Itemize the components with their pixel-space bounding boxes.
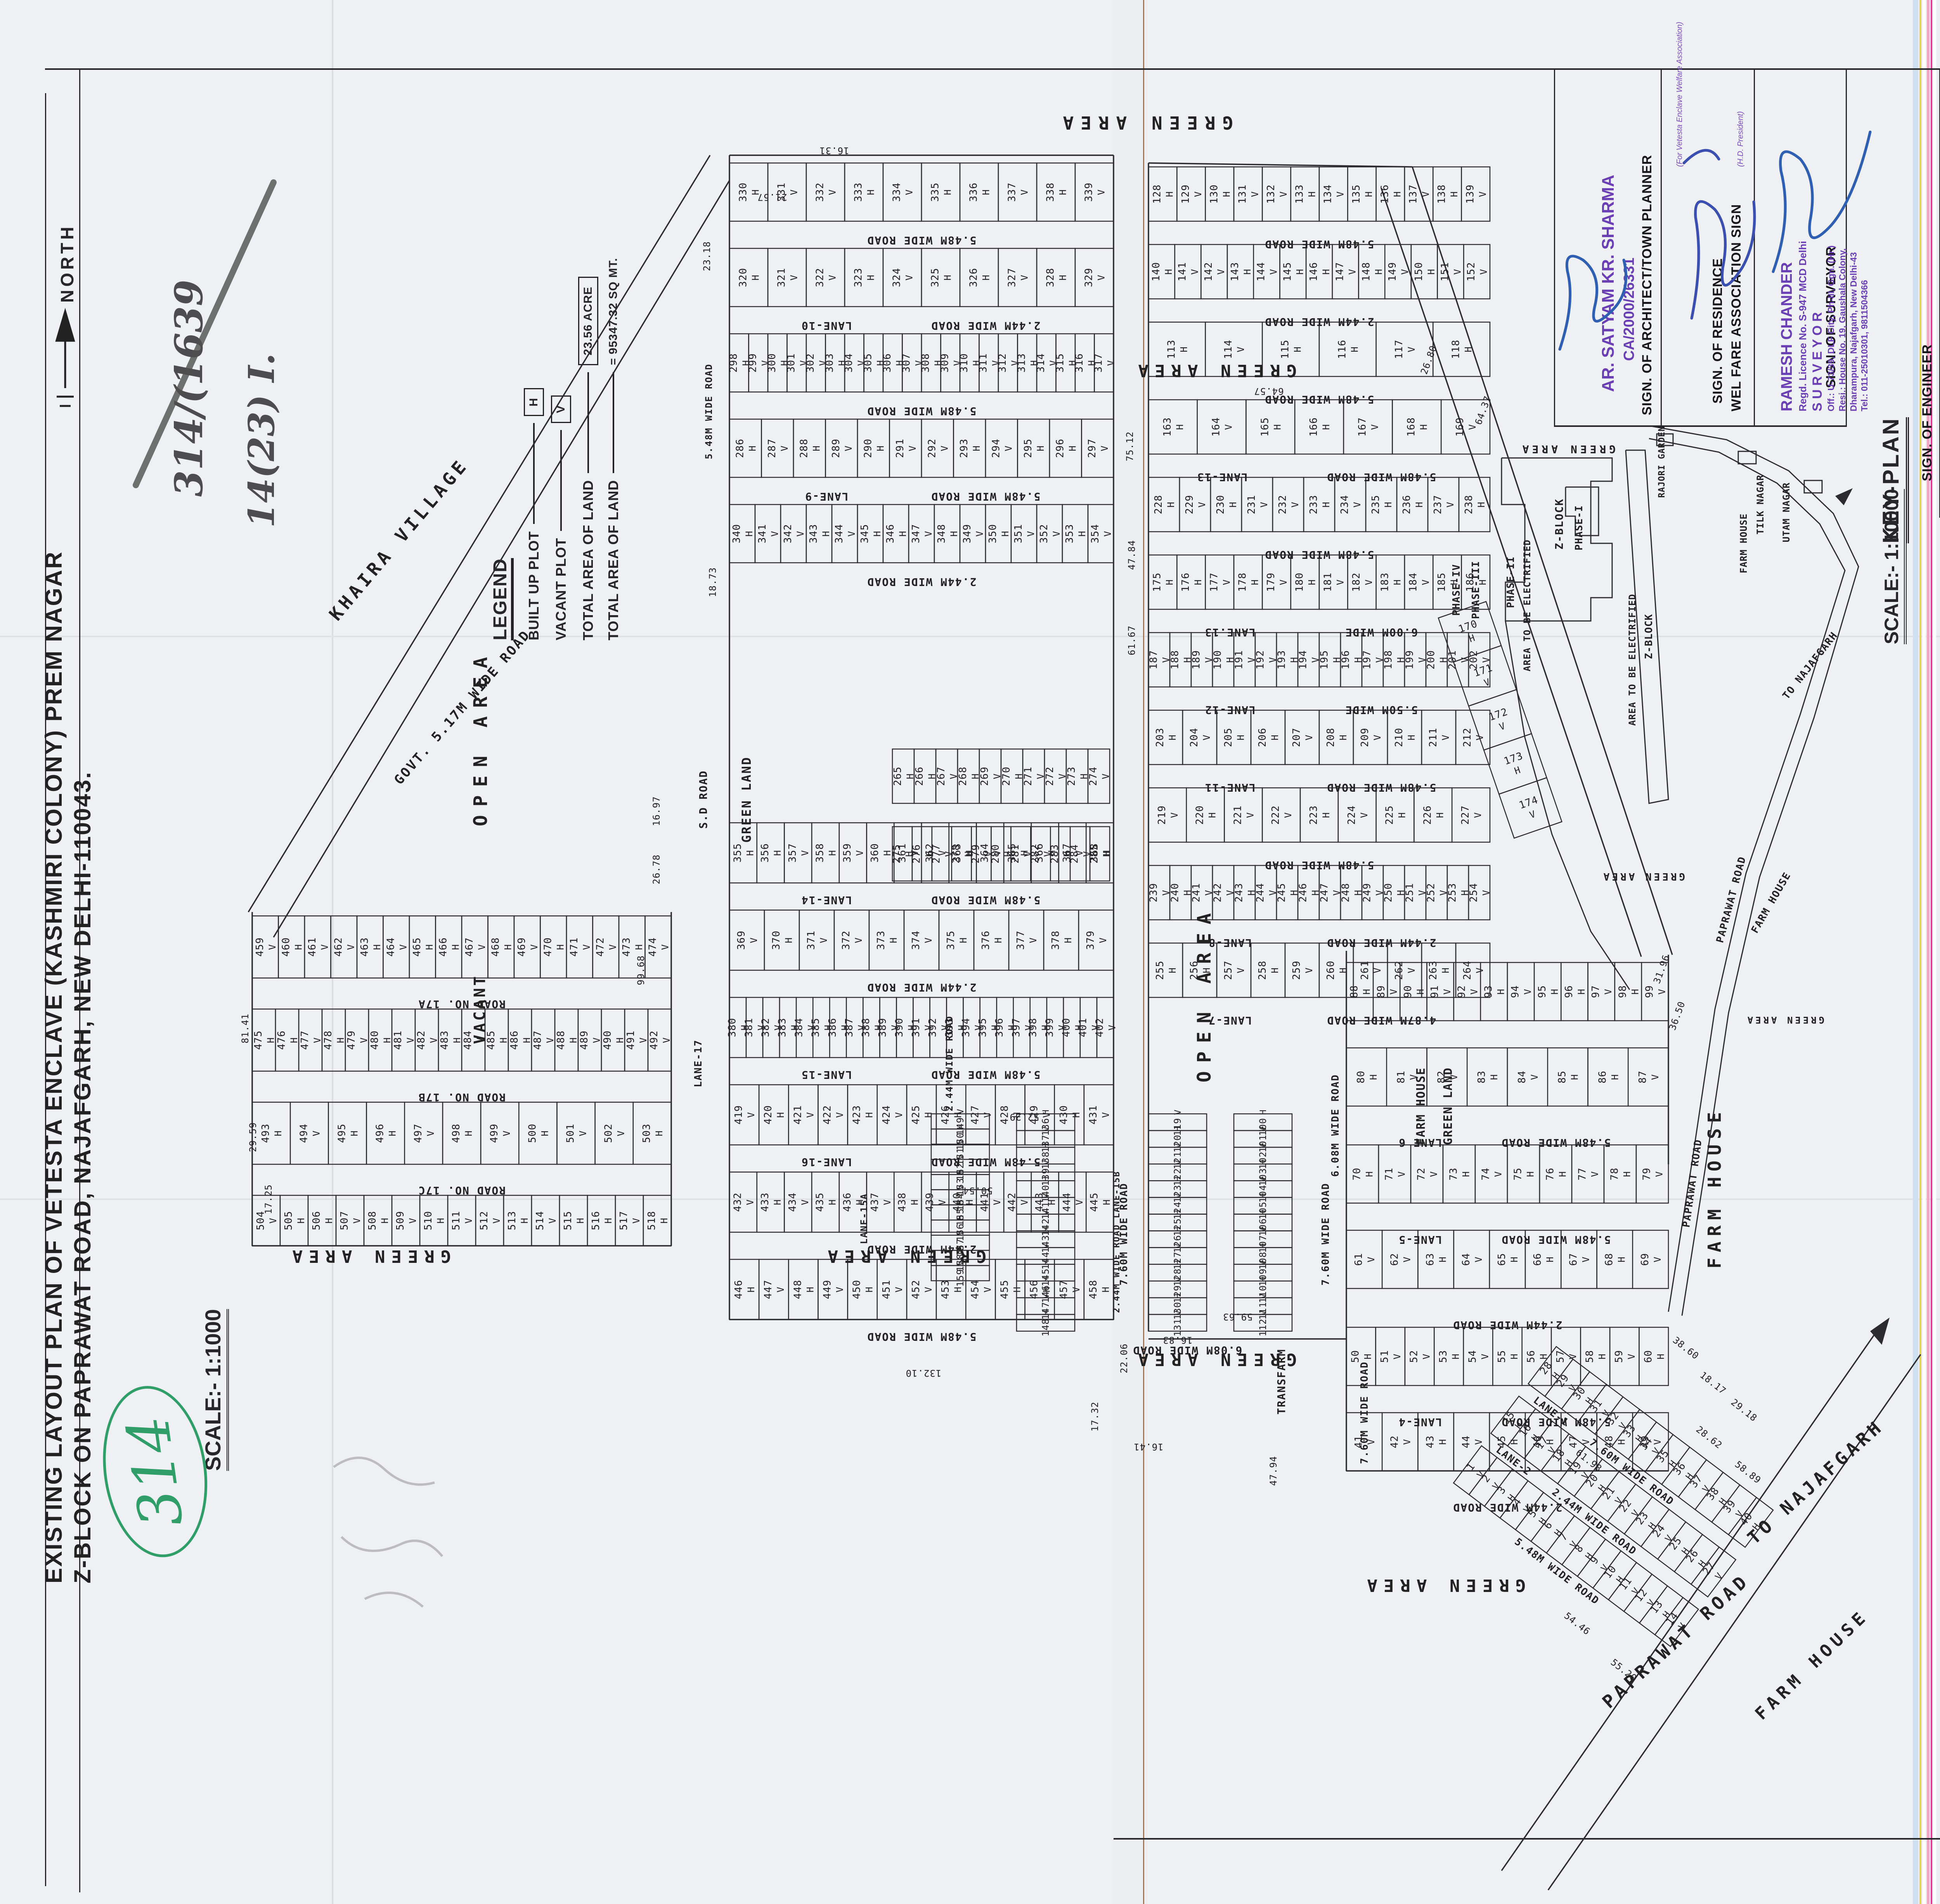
road-label: LANE-15 (801, 1068, 852, 1081)
plot-number: 338 (1045, 182, 1057, 202)
plot-flag: H (1207, 812, 1218, 818)
plot-number: 53 (1438, 1350, 1449, 1363)
plot-flag: V (1335, 191, 1346, 197)
plot-number: 169 (1454, 417, 1466, 437)
plot-number: 326 (968, 268, 980, 287)
plot-flag: V (835, 1287, 845, 1292)
plot-flag: V (1173, 1143, 1183, 1148)
plot-number: 343 (808, 524, 819, 543)
plot-number: 54 (1467, 1350, 1479, 1363)
plot-band: 504V505H506H507V508H509V510H511V512V513H… (252, 1195, 671, 1246)
plot-flag: H (1440, 967, 1451, 973)
plot-number: 502 (603, 1124, 615, 1143)
plot-number: 432 (732, 1193, 743, 1212)
plot-number: 468 (490, 937, 501, 957)
plot-number: 450 (851, 1280, 863, 1299)
plot-number: 92 (1456, 985, 1467, 998)
plot-number: 445 (1089, 1193, 1100, 1212)
plot-number: 179 (1265, 572, 1277, 592)
plot-number: 243 (1233, 883, 1245, 902)
plot-flag: V (1429, 1171, 1439, 1177)
plot-number: 487 (532, 1030, 544, 1050)
plot-number: 133 (1294, 184, 1305, 204)
plot-number: 317 (1093, 353, 1104, 373)
plot-flag: H (1259, 1109, 1268, 1115)
plot-number: 499 (488, 1124, 500, 1143)
plot-number: 296 (1054, 439, 1066, 458)
plot-flag: V (1190, 269, 1200, 274)
plot-number: 335 (930, 182, 941, 202)
plot-flag: H (335, 1037, 346, 1043)
plot-number: 94 (1510, 985, 1521, 998)
plot-number: 286 (734, 439, 746, 458)
plot-number: 321 (776, 268, 788, 287)
plot-number: 260 (1325, 961, 1337, 980)
plot-flag: V (1096, 189, 1107, 195)
plot-flag: H (502, 944, 513, 950)
plot-flag: V (956, 1108, 966, 1114)
plot-number: 285 (1089, 844, 1100, 864)
plot-number: 51 (1379, 1350, 1391, 1363)
plot-flag: V (956, 1230, 966, 1235)
plot-number: 236 (1401, 495, 1413, 514)
plot-number: 281 (1010, 844, 1021, 864)
area-label: FARM HOUSE (1704, 1107, 1725, 1269)
plot-number: 69 (1639, 1253, 1651, 1266)
plot-number: 424 (881, 1105, 892, 1125)
plot-flag: V (1003, 445, 1014, 451)
plot-flag: V (1370, 424, 1381, 430)
plot-number: 512 (478, 1211, 490, 1230)
road-label: LANE-14 (801, 894, 852, 907)
plot-flag: H (324, 1217, 334, 1223)
road-label: 6.00M WIDE (1345, 626, 1418, 639)
plot-number: 118 (1450, 340, 1462, 359)
keyplan-label: AREA TO BE ELECTRIFIED (1522, 539, 1533, 671)
plot-number: 466 (437, 937, 449, 957)
plot-flag: V (1406, 967, 1417, 973)
dimension-label: 26.80 (1419, 344, 1439, 376)
plot-flag: V (843, 445, 854, 451)
plot-number: 252 (1426, 883, 1437, 902)
plot-number: 67 (1568, 1253, 1579, 1266)
plot-number: 52 (1408, 1350, 1420, 1363)
plot-flag: H (1349, 346, 1360, 352)
plot-flag: V (1366, 1256, 1377, 1262)
dimension-label: 16.31 (819, 145, 849, 156)
plot-number: 347 (910, 524, 922, 543)
plot-number: 332 (814, 182, 826, 202)
plot-flag: V (631, 1217, 642, 1223)
plot-number: 43 (1425, 1435, 1436, 1448)
dimension-label: 26.78 (651, 854, 662, 884)
area-label: PAPRAWAT ROAD (1598, 1569, 1753, 1712)
area-label: VACANT (471, 974, 489, 1044)
plot-number: 272 (1044, 766, 1056, 786)
plot-flag: H (1259, 1160, 1268, 1165)
plot-number: 287 (766, 439, 778, 458)
plot-number: 64 (1460, 1253, 1472, 1266)
plot-number: 220 (1194, 805, 1206, 825)
plot-number: 378 (1050, 931, 1062, 950)
plot-flag: H (1306, 579, 1317, 585)
plot-flag: V (359, 1037, 369, 1043)
plot-number: 136 (1379, 184, 1391, 204)
plot-number: 351 (1013, 524, 1024, 543)
keyplan-landmark-box (1804, 480, 1822, 493)
plot-band: 163H164V165H166H167V168H169V (1148, 400, 1490, 454)
scanned-layout-plan-sheet: EXISTING LAYOUT PLAN OF VETESTA ENCLAVE … (0, 0, 1940, 1904)
plot-flag: V (581, 944, 592, 950)
plot-number: 472 (594, 937, 606, 957)
keyplan-label: TILK NAGAR (1755, 475, 1766, 535)
road-label: 2.44M WIDE ROAD (944, 1016, 955, 1112)
dimension-label: 75.12 (1124, 431, 1135, 461)
plot-flag: V (501, 1130, 512, 1136)
plot-flag: H (1163, 269, 1174, 274)
plot-flag: V (846, 531, 857, 536)
plot-flag: V (616, 1130, 627, 1136)
plot-flag: V (1028, 937, 1039, 943)
plot-number: 93 (1483, 985, 1494, 998)
plot-flag: V (1650, 1074, 1661, 1080)
road-label: 5.48M WIDE ROAD (1264, 548, 1374, 561)
plot-band: 493H494V495H496H497V498H499V500H501V502V… (252, 1102, 671, 1164)
plot-number: 399 (1044, 1018, 1055, 1037)
plot-number: 454 (969, 1280, 981, 1299)
plot-number: 370 (771, 931, 782, 950)
dimension-label: 81.41 (240, 1013, 251, 1043)
plot-number: 77 (1577, 1167, 1588, 1180)
plot-flag: V (607, 944, 618, 950)
area-label: GREEN AREA (1056, 112, 1233, 133)
road-label: 5.48M WIDE ROAD (931, 894, 1041, 907)
plot-number: 356 (759, 843, 771, 863)
plot-number: 308 (920, 353, 932, 373)
keyplan-label: GREEN AREA (1519, 443, 1616, 456)
road-label: LANE-13 (1197, 471, 1248, 484)
plot-number: 434 (787, 1193, 799, 1212)
plot-number: 511 (450, 1211, 462, 1230)
plot-flag: V (818, 937, 829, 943)
road-label: 7.60M WIDE ROAD (1587, 1437, 1676, 1508)
plot-number: 419 (733, 1105, 745, 1125)
plot-band: 28H29V30H31V32V33H34V35H36H37V38H39V40H (1528, 1346, 1775, 1548)
plot-flag: V (1400, 269, 1410, 274)
plot-number: 389 (877, 1018, 889, 1037)
plot-number: 79 (1641, 1167, 1653, 1180)
area-label: OPEN AREA (470, 649, 492, 826)
plot-number: 402 (1094, 1018, 1105, 1037)
road-label: 2.44M WIDE ROAD (1453, 1501, 1562, 1514)
road-label: LANE-5 (1398, 1233, 1442, 1246)
road-label: 7.60M WIDE ROAD (1359, 1361, 1370, 1464)
dimension-label: 18.17 (1698, 1370, 1728, 1397)
plot-number: 200 (1426, 650, 1437, 669)
plot-flag: V (1259, 501, 1270, 507)
plot-number: 377 (1015, 931, 1027, 950)
plot-flag: V (425, 1130, 436, 1136)
plot-flag: H (1077, 531, 1088, 536)
plot-number: 284 (1069, 844, 1081, 864)
plot-number: 337 (1006, 182, 1018, 202)
plot-flag: H (435, 1217, 446, 1223)
plot-flag: H (1067, 445, 1078, 451)
plot-flag: V (1259, 1226, 1268, 1232)
plot-flag: H (521, 1037, 532, 1043)
plot-number: 312 (997, 353, 1008, 373)
plot-number: 381 (743, 1018, 755, 1037)
plot-flag: H (981, 189, 992, 195)
plan-drawing: 330H331V332V333H334V335H336H337V338H339V… (0, 0, 1940, 1904)
plot-number: 506 (311, 1211, 322, 1230)
plot-number: 359 (842, 843, 853, 863)
plot-flag: H (1616, 1256, 1627, 1262)
plot-number: 311 (977, 353, 989, 373)
plot-flag: H (1461, 1171, 1472, 1177)
plot-number: 288 (798, 439, 810, 458)
plot-number: 96 (1563, 985, 1575, 998)
plot-number: 89 (1375, 985, 1387, 998)
plot-band: 140H141V142V143H144V145H146H147V148H149V… (1148, 245, 1490, 299)
plot-flag: H (1597, 1353, 1607, 1359)
plot-flag: H (783, 937, 794, 943)
plot-flag: V (795, 531, 806, 536)
plot-band: 446H447V448H449V450H451V452V453H454V455H… (729, 1259, 1114, 1320)
road-label: 2.44M WIDE ROAD (1550, 1486, 1639, 1557)
plot-number: 189 (1191, 650, 1202, 669)
plot-flag: H (659, 1217, 670, 1223)
plot-flag: H (1164, 579, 1175, 585)
area-label: TO NAJAFGARH (1743, 1415, 1888, 1549)
plot-number: 290 (862, 439, 874, 458)
road-label: 5.48M WIDE ROAD (931, 1156, 1041, 1169)
plot-flag: V (1473, 1256, 1484, 1262)
plot-flag: V (491, 1217, 502, 1223)
plot-number: 481 (392, 1030, 404, 1050)
plot-number: 269 (979, 766, 991, 786)
plot-number: 176 (1180, 572, 1192, 592)
plot-band: 265H266H267V268H269V270H271V272V273H274V (892, 749, 1111, 803)
plot-number: 254 (1468, 883, 1480, 902)
plot-number: 423 (851, 1105, 863, 1125)
area-label: GREEN AREA (1132, 361, 1297, 380)
road-label: 2.44M WIDE ROAD (931, 319, 1041, 332)
road-label: 5.48M WIDE ROAD (867, 234, 977, 247)
plot-flag: V (789, 189, 800, 195)
plot-flag: V (398, 944, 409, 950)
plot-flag: V (1401, 1439, 1412, 1444)
plot-number: 265 (892, 766, 904, 786)
plot-number: 382 (760, 1018, 772, 1037)
plot-number: 503 (641, 1124, 653, 1143)
plot-flag: H (1164, 191, 1175, 197)
plot-number: 479 (346, 1030, 357, 1050)
plot-number: 469 (516, 937, 528, 957)
plot-flag: V (1041, 1243, 1051, 1249)
plot-number: 297 (1086, 439, 1098, 458)
plot-flag: V (1096, 274, 1107, 280)
dimension-label: 21.57 (757, 192, 787, 203)
plot-flag: V (1193, 191, 1204, 197)
plot-number: 309 (939, 353, 951, 373)
plot-number: 246 (1297, 883, 1309, 902)
plot-number: 283 (1049, 844, 1061, 864)
plot-flag: H (909, 1199, 920, 1205)
plot-number: 465 (411, 937, 423, 957)
plot-number: 435 (814, 1193, 826, 1212)
plot-flag: V (312, 1037, 323, 1043)
plot-number: 516 (590, 1211, 602, 1230)
plot-flag: H (1228, 501, 1238, 507)
plot-flag: H (993, 937, 1004, 943)
road-label: 5.48M WIDE ROAD (703, 364, 714, 460)
plot-flag: V (1652, 1256, 1663, 1262)
road-label: LANE-11 (1204, 781, 1256, 794)
plot-number: 430 (1058, 1105, 1070, 1125)
plot-number: 263 (1427, 961, 1439, 980)
plot-flag: H (1221, 191, 1232, 197)
plot-number: 131 (1172, 1318, 1183, 1336)
plot-number: 132 (1265, 184, 1277, 204)
plot-flag: V (1474, 967, 1485, 973)
plot-flag: H (1321, 812, 1332, 818)
plot-number: 497 (412, 1124, 424, 1143)
plot-number: 491 (625, 1030, 637, 1050)
plot-number: 166 (1308, 417, 1320, 437)
plot-number: 329 (1083, 268, 1095, 287)
plot-flag: V (805, 1112, 816, 1118)
plot-number: 86 (1597, 1070, 1608, 1083)
plot-flag: V (1498, 720, 1507, 733)
plot-number: 324 (891, 268, 903, 287)
plot-flag: H (1270, 967, 1280, 973)
plot-flag: V (827, 189, 838, 195)
plot-number: 173 (1502, 750, 1524, 768)
plot-band: 320H321V322V323H324V325H326H327V328H329V (729, 248, 1114, 307)
plot-number: 461 (307, 937, 318, 957)
plot-flag: V (1477, 191, 1488, 197)
plot-number: 159 (955, 1269, 966, 1287)
plot-number: 61 (1353, 1253, 1365, 1266)
plot-flag: V (1100, 1112, 1111, 1118)
plot-number: 452 (910, 1280, 922, 1299)
plot-flag: V (1420, 579, 1431, 585)
plot-flag: H (1259, 1193, 1268, 1198)
plot-number: 148 (1040, 1318, 1051, 1336)
plot-flag: H (498, 1037, 509, 1043)
plot-flag: H (1178, 346, 1189, 352)
plot-number: 514 (534, 1211, 546, 1230)
dimension-label: 52.29 (1009, 1112, 1039, 1122)
plot-flag: V (800, 1199, 811, 1205)
plot-flag: V (1396, 1171, 1407, 1177)
plot-flag: H (942, 189, 953, 195)
plot-flag: V (853, 937, 864, 943)
plot-flag: H (1167, 734, 1178, 740)
plot-flag: H (942, 274, 953, 280)
plot-flag: H (1174, 424, 1185, 430)
plot-flag: H (1041, 1109, 1051, 1115)
plot-number: 380 (727, 1018, 738, 1037)
plot-number: 274 (1088, 766, 1099, 786)
plot-flag: H (811, 445, 822, 451)
plot-flag: H (1235, 734, 1246, 740)
plot-number: 340 (731, 524, 743, 543)
plot-flag: V (1335, 579, 1346, 585)
plot-flag: V (1173, 1109, 1183, 1115)
plot-number: 181 (1322, 572, 1334, 592)
plot-flag: V (1283, 812, 1294, 818)
plot-number: 336 (968, 182, 980, 202)
area-label: OPEN AREA (1193, 905, 1215, 1082)
plot-number: 230 (1215, 495, 1226, 514)
plot-flag: V (1452, 269, 1463, 274)
plot-number: 58 (1584, 1350, 1595, 1363)
plot-flag: H (866, 274, 876, 280)
plot-number: 146 (1308, 262, 1320, 281)
plot-flag: H (1509, 1353, 1520, 1359)
plot-flag: V (591, 1037, 602, 1043)
plot-number: 446 (733, 1280, 745, 1299)
plot-number: 478 (322, 1030, 334, 1050)
plot-number: 255 (1154, 961, 1166, 980)
plot-flag: V (1235, 967, 1246, 973)
plot-flag: V (1259, 1143, 1268, 1148)
plot-number: 482 (416, 1030, 427, 1050)
plot-number: 494 (298, 1124, 310, 1143)
plot-flag: H (450, 944, 461, 950)
dimension-label: 36.50 (1667, 1000, 1687, 1032)
plot-flag: H (744, 531, 755, 536)
plot-number: 354 (1090, 524, 1101, 543)
plot-flag: H (1321, 269, 1332, 274)
road-label: LANE-15A (859, 1193, 870, 1244)
plot-number: 300 (766, 353, 778, 373)
plot-number: 203 (1154, 728, 1166, 747)
plot-flag: H (1392, 191, 1403, 197)
plot-number: 518 (646, 1211, 658, 1230)
plot-number: 505 (283, 1211, 294, 1230)
plot-number: 74 (1480, 1167, 1492, 1180)
plot-number: 294 (990, 439, 1002, 458)
plot-number: 140 (1150, 262, 1162, 281)
plot-number: 249 (1361, 883, 1373, 902)
plot-number: 397 (1010, 1018, 1022, 1037)
road-label: 5.48M WIDE ROAD (1264, 238, 1374, 251)
plot-number: 211 (1427, 728, 1439, 747)
plot-flag: H (1173, 1210, 1183, 1215)
plot-flag: V (1250, 191, 1261, 197)
plot-flag: H (827, 1199, 838, 1205)
area-label: TRANSFARM (1275, 1349, 1288, 1415)
plot-flag: H (265, 1037, 276, 1043)
plot-number: 227 (1460, 805, 1471, 825)
plot-flag: V (1421, 1353, 1432, 1359)
plot-number: 60 (1642, 1350, 1654, 1363)
plot-number: 250 (1383, 883, 1394, 902)
road-arrow-icon (1870, 1318, 1890, 1345)
road-label: 5.48M WIDE ROAD (931, 490, 1041, 503)
plot-flag: V (1041, 1193, 1051, 1198)
plot-number: 444 (1061, 1193, 1073, 1212)
plot-flag: H (772, 850, 783, 856)
plot-flag: H (1414, 501, 1425, 507)
pencil-scribble (334, 1458, 442, 1607)
plot-number: 395 (977, 1018, 989, 1037)
plot-flag: V (1304, 967, 1315, 973)
plot-flag: H (387, 1130, 398, 1136)
